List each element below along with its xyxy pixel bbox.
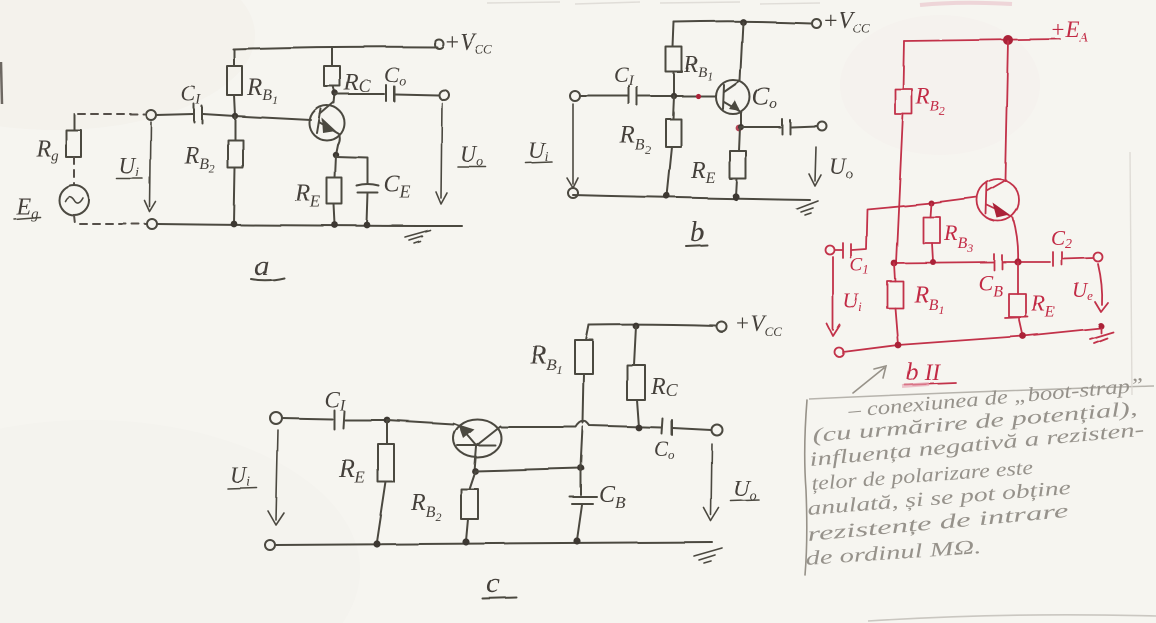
svg-text:c: c <box>487 567 500 600</box>
svg-text:b II: b II <box>906 359 941 386</box>
svg-text:a: a <box>254 249 269 282</box>
svg-text:b: b <box>690 217 704 248</box>
